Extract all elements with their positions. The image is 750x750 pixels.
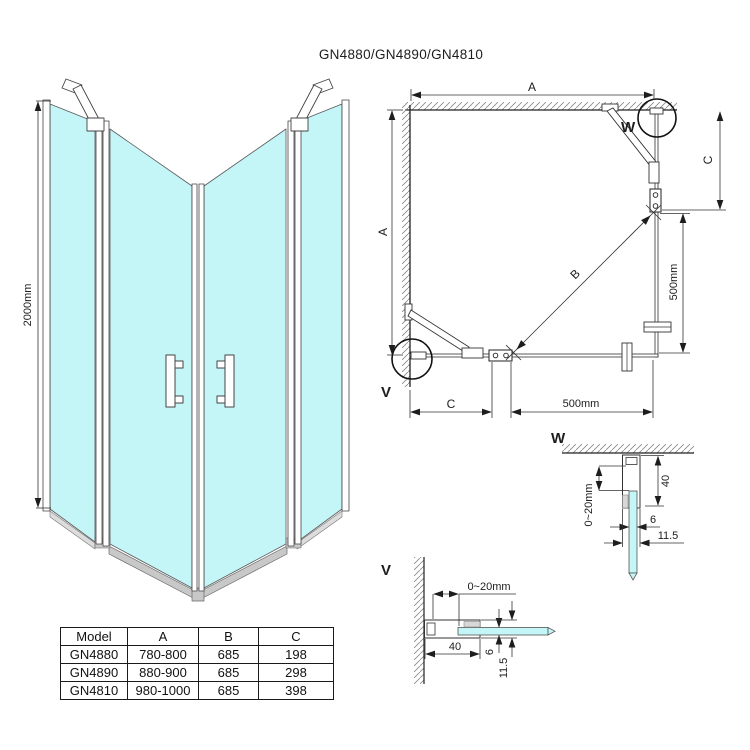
plan-hinge-bottom bbox=[489, 350, 512, 361]
dim-c-right-label: C bbox=[701, 155, 715, 164]
center-profile-right bbox=[199, 184, 204, 591]
detail-v-profile-slot bbox=[427, 623, 435, 635]
glass-door-right bbox=[204, 129, 286, 588]
plan-brace-left bbox=[405, 304, 483, 358]
table-cell-b: 685 bbox=[199, 646, 259, 664]
table-header-c: C bbox=[259, 628, 334, 646]
table-row: GN4880 780-800 685 198 bbox=[61, 646, 334, 664]
dim-a-left-label: A bbox=[376, 228, 390, 236]
height-dimension-label: 2000mm bbox=[22, 284, 34, 327]
dim-a-top-label: A bbox=[528, 80, 536, 94]
detail-w-clamp bbox=[623, 495, 629, 508]
detail-v-depth-label: 40 bbox=[449, 641, 461, 653]
plan-handle-bottom bbox=[622, 343, 632, 371]
table-cell-model: GN4880 bbox=[61, 646, 128, 664]
detail-w-ceiling-hatch bbox=[562, 444, 694, 453]
table-cell-a: 880-900 bbox=[128, 664, 199, 682]
plan-brace-top bbox=[602, 104, 659, 183]
model-spec-table: Model A B C GN4880 780-800 685 198 GN489… bbox=[60, 627, 334, 700]
dim-500-right-label: 500mm bbox=[668, 264, 680, 301]
hinge-profile-right-b bbox=[295, 118, 301, 544]
front-view-drawing: 2000mm bbox=[22, 79, 349, 601]
detail-v-profile-label: 11.5 bbox=[498, 658, 510, 679]
marker-v-label: V bbox=[381, 384, 391, 401]
detail-v-glass-label: 6 bbox=[484, 649, 496, 655]
detail-v-glass bbox=[458, 628, 548, 636]
dim-500-bottom-label: 500mm bbox=[563, 398, 600, 410]
table-cell-b: 685 bbox=[199, 682, 259, 700]
wall-anchor-left bbox=[411, 352, 426, 359]
hinge-profile-left-a bbox=[96, 118, 102, 544]
detail-v-glass-tip bbox=[548, 628, 555, 636]
detail-w-glass-label: 6 bbox=[650, 514, 656, 526]
detail-w-profile-label: 11.5 bbox=[658, 530, 679, 542]
wall-left-hatch bbox=[402, 105, 410, 387]
plan-panel-right bbox=[655, 110, 658, 357]
dim-c-right bbox=[662, 112, 726, 210]
table-cell-c: 398 bbox=[259, 682, 334, 700]
table-header-a: A bbox=[128, 628, 199, 646]
detail-v-title: V bbox=[381, 562, 391, 579]
detail-w-gap-label: 0~20mm bbox=[583, 483, 595, 526]
table-row: GN4810 980-1000 685 398 bbox=[61, 682, 334, 700]
detail-w-drawing: W 0~20mm 40 6 11.5 bbox=[551, 430, 694, 580]
plan-handle-right bbox=[644, 322, 671, 332]
table-header-model: Model bbox=[61, 628, 128, 646]
table-cell-c: 198 bbox=[259, 646, 334, 664]
glass-door-left bbox=[110, 129, 192, 588]
dim-b-diagonal bbox=[506, 205, 661, 360]
detail-v-drawing: V 0~20mm 40 6 bbox=[381, 557, 555, 684]
frame-profile-far-right bbox=[342, 100, 349, 511]
detail-w-profile-slot bbox=[626, 458, 637, 465]
hinge-profile-right-a bbox=[288, 121, 294, 546]
dim-b-label: B bbox=[567, 266, 583, 282]
page-title: GN4880/GN4890/GN4810 bbox=[319, 47, 483, 62]
hinge-profile-left-b bbox=[103, 121, 109, 546]
detail-w-glass-tip bbox=[629, 573, 637, 580]
table-header-b: B bbox=[199, 628, 259, 646]
dim-c-bottom-label: C bbox=[447, 397, 456, 411]
marker-w-label: W bbox=[621, 119, 636, 136]
table-row: GN4890 880-900 685 298 bbox=[61, 664, 334, 682]
plan-view-drawing: W V A A C 500mm bbox=[376, 80, 726, 418]
table-cell-a: 980-1000 bbox=[128, 682, 199, 700]
detail-v-clamp bbox=[464, 622, 480, 628]
table-cell-model: GN4890 bbox=[61, 664, 128, 682]
spec-sheet: GN4880/GN4890/GN4810 bbox=[0, 0, 750, 750]
detail-v-gap-label: 0~20mm bbox=[467, 581, 510, 593]
detail-w-glass bbox=[629, 491, 637, 573]
detail-w-depth-label: 40 bbox=[660, 475, 672, 487]
wall-anchor-top bbox=[650, 108, 663, 114]
table-cell-model: GN4810 bbox=[61, 682, 128, 700]
center-profile-left bbox=[192, 184, 197, 591]
table-cell-b: 685 bbox=[199, 664, 259, 682]
table-cell-c: 298 bbox=[259, 664, 334, 682]
table-cell-a: 780-800 bbox=[128, 646, 199, 664]
detail-v-wall-hatch bbox=[414, 557, 424, 684]
plan-hinge-right bbox=[650, 189, 661, 212]
table-header-row: Model A B C bbox=[61, 628, 334, 646]
glass-panel-fixed-left bbox=[50, 104, 95, 542]
wall-top-hatch bbox=[405, 102, 677, 110]
frame-profile-far-left bbox=[43, 100, 50, 511]
glass-panel-fixed-right bbox=[297, 104, 342, 542]
plan-panel-bottom bbox=[410, 354, 658, 357]
